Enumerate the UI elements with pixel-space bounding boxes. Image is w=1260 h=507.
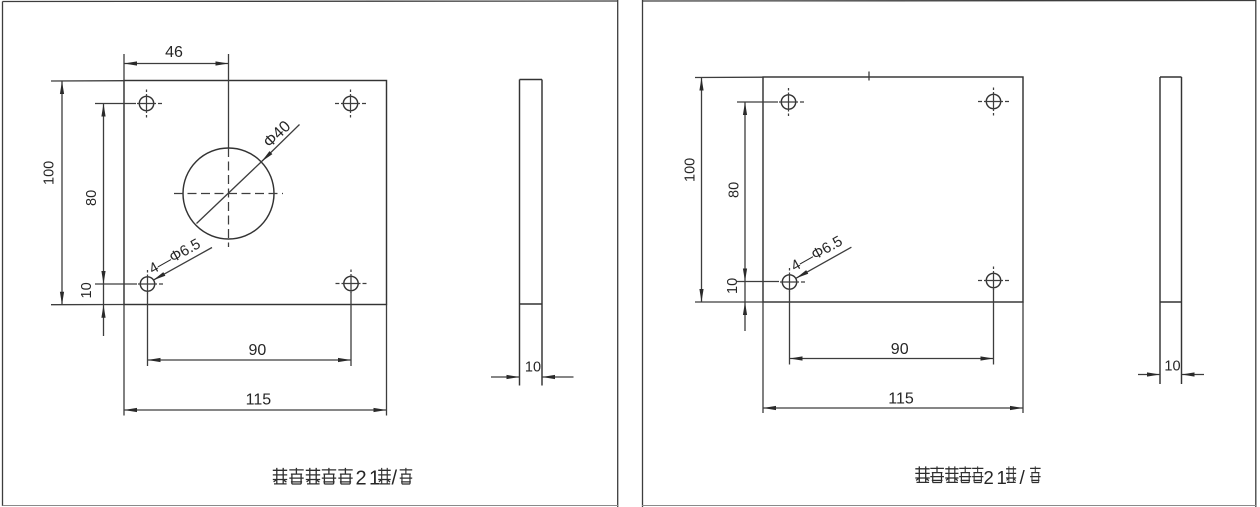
svg-text:90: 90 (249, 342, 267, 359)
svg-text:80: 80 (84, 190, 100, 206)
svg-text:100: 100 (683, 158, 699, 182)
svg-text:2: 2 (356, 468, 367, 490)
svg-text:10: 10 (725, 278, 741, 294)
svg-text:2: 2 (984, 467, 994, 488)
svg-text:10: 10 (79, 282, 95, 298)
svg-text:46: 46 (165, 44, 183, 61)
svg-text:115: 115 (246, 392, 272, 409)
svg-text:90: 90 (891, 341, 909, 358)
svg-text:/: / (392, 468, 398, 490)
svg-text:115: 115 (888, 391, 914, 408)
svg-text:1: 1 (997, 467, 1007, 488)
svg-text:100: 100 (42, 161, 58, 185)
svg-text:/: / (1020, 468, 1026, 489)
svg-text:10: 10 (1164, 359, 1180, 375)
svg-text:10: 10 (525, 360, 541, 376)
svg-text:80: 80 (727, 182, 743, 198)
